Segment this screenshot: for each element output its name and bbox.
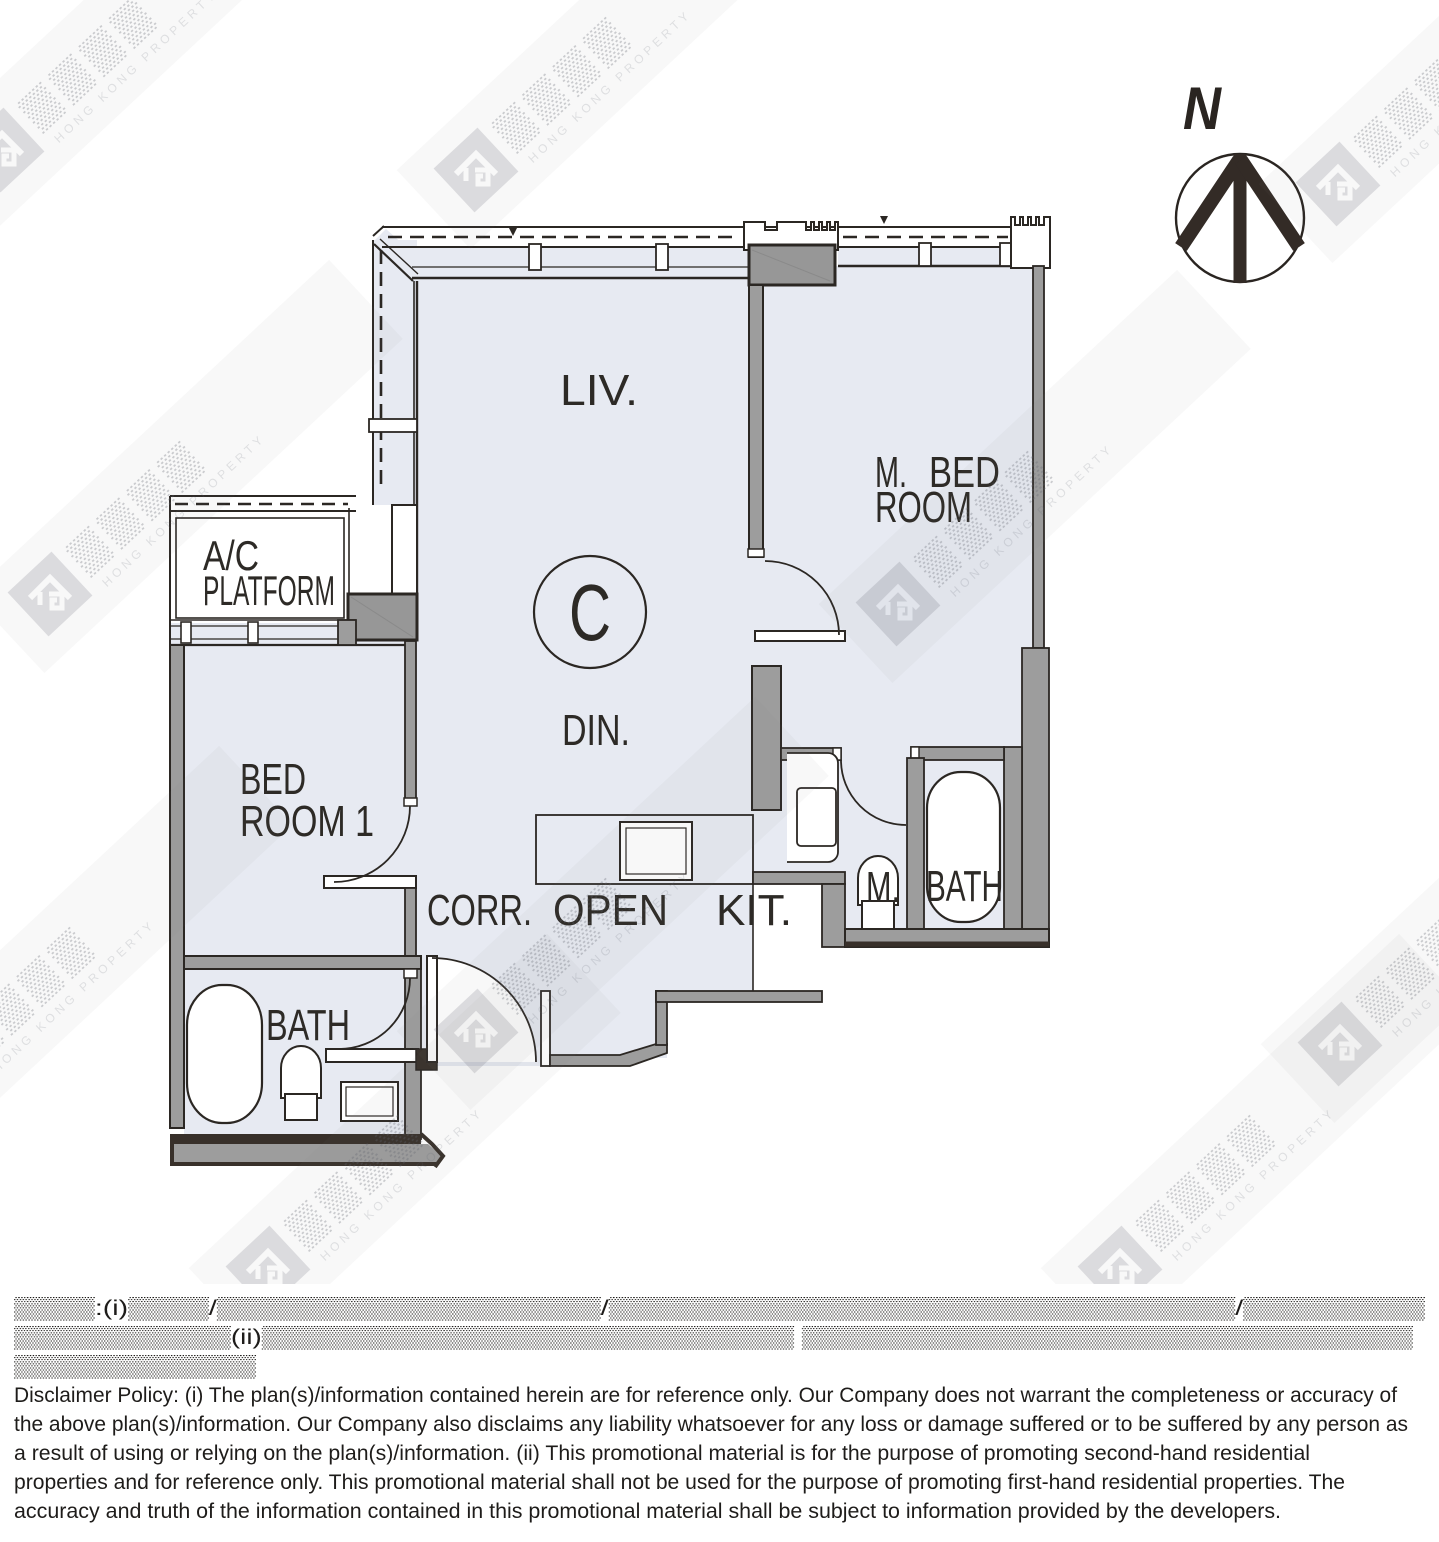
svg-text:N: N [1183,75,1222,142]
svg-text:DIN.: DIN. [562,706,630,755]
svg-text:C: C [569,568,611,657]
svg-text:properties and for reference o: properties and for reference only. This … [14,1470,1345,1494]
svg-text:the above plan(s)/information.: the above plan(s)/information. Our Compa… [14,1412,1408,1436]
svg-text:M.: M. [866,863,900,912]
svg-text:LIV.: LIV. [560,366,638,415]
svg-text:a result of using or relying o: a result of using or relying on the plan… [14,1441,1310,1465]
svg-text:PLATFORM: PLATFORM [203,567,335,614]
svg-text:▒▒▒▒▒▒▒▒▒▒▒(ii)▒▒▒▒▒▒▒▒▒▒▒▒▒▒▒: ▒▒▒▒▒▒▒▒▒▒▒(ii)▒▒▒▒▒▒▒▒▒▒▒▒▒▒▒▒▒▒▒▒▒▒▒▒▒… [14,1325,1414,1350]
svg-text:accuracy and truth of the info: accuracy and truth of the information co… [14,1499,1281,1523]
svg-text:Disclaimer Policy: (i) The pla: Disclaimer Policy: (i) The plan(s)/infor… [14,1383,1397,1407]
svg-text:KIT.: KIT. [716,886,792,935]
svg-text:BATH: BATH [266,1001,350,1050]
svg-text:▒▒▒▒:(i)▒▒▒▒/▒▒▒▒▒▒▒▒▒▒▒▒▒▒▒▒▒: ▒▒▒▒:(i)▒▒▒▒/▒▒▒▒▒▒▒▒▒▒▒▒▒▒▒▒▒▒▒/▒▒▒▒▒▒▒… [14,1296,1426,1321]
svg-text:▒▒▒▒▒▒▒▒▒▒▒▒: ▒▒▒▒▒▒▒▒▒▒▒▒ [14,1354,257,1379]
svg-text:BATH: BATH [926,862,1003,911]
